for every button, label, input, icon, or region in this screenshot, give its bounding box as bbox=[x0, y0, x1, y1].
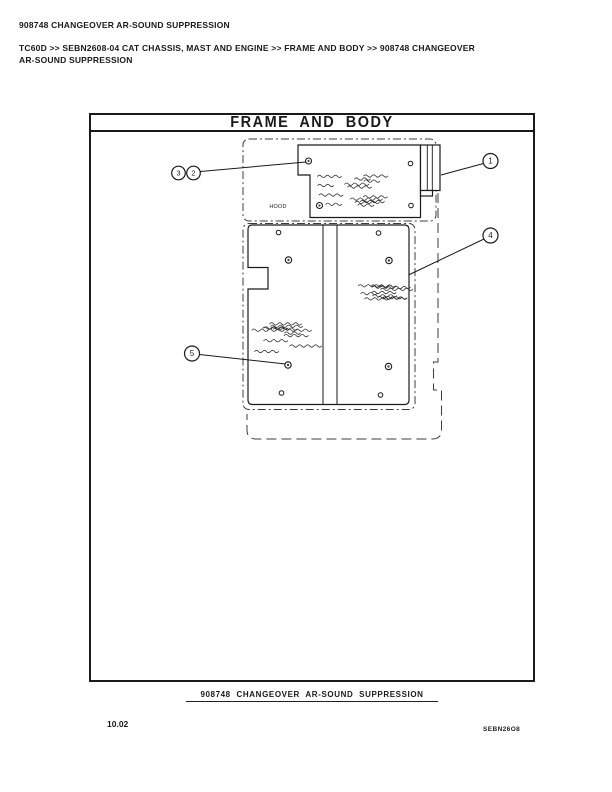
figure-caption: 908748 CHANGEOVER AR-SOUND SUPPRESSION bbox=[186, 690, 437, 702]
screw-hole bbox=[409, 203, 414, 208]
callout-number: 1 bbox=[488, 157, 493, 166]
leader-line bbox=[409, 239, 485, 275]
hood-label: HOOD bbox=[269, 204, 286, 210]
hood-flange bbox=[421, 145, 441, 191]
bolt bbox=[385, 363, 391, 369]
callout-number: 3 bbox=[176, 169, 180, 178]
frame-and-body-drawing: 3 2 1 4 5 HOOD bbox=[91, 134, 533, 680]
page-root: { "colors": { "ink": "#1a1a1a" }, "page"… bbox=[0, 0, 612, 792]
callout-balloon-2: 2 bbox=[187, 166, 201, 180]
breadcrumb: TC60D >> SEBN2608-04 CAT CHASSIS, MAST A… bbox=[19, 43, 481, 66]
callout-number: 5 bbox=[190, 349, 195, 358]
screw-hole bbox=[276, 230, 281, 235]
screw-hole bbox=[279, 391, 284, 396]
bolt bbox=[285, 362, 291, 368]
callout-balloon-4: 4 bbox=[483, 228, 498, 243]
callout-balloon-1: 1 bbox=[483, 154, 498, 169]
leader-line bbox=[201, 162, 307, 172]
bolt bbox=[386, 257, 392, 263]
figure-title-bar: FRAME AND BODY bbox=[91, 115, 533, 132]
bolt bbox=[306, 158, 312, 164]
leader-line bbox=[441, 164, 484, 176]
figure-border: FRAME AND BODY bbox=[89, 113, 535, 682]
callout-balloon-5: 5 bbox=[185, 346, 200, 361]
document-title: 908748 CHANGEOVER AR-SOUND SUPPRESSION bbox=[19, 20, 230, 30]
body-panel bbox=[248, 225, 409, 405]
hood-flange-step bbox=[421, 191, 433, 197]
bolt bbox=[317, 203, 323, 209]
screw-hole bbox=[408, 161, 413, 166]
page-number: 10.02 bbox=[107, 719, 128, 729]
screw-hole bbox=[378, 393, 383, 398]
screw-hole bbox=[376, 231, 381, 236]
bolt bbox=[285, 257, 291, 263]
figure-caption-row: 908748 CHANGEOVER AR-SOUND SUPPRESSION bbox=[89, 684, 535, 702]
callout-number: 2 bbox=[191, 169, 195, 178]
callout-balloon-3: 3 bbox=[172, 166, 186, 180]
callout-number: 4 bbox=[488, 231, 493, 240]
doc-code: SEBN26O8 bbox=[483, 726, 520, 733]
figure-title: FRAME AND BODY bbox=[230, 114, 393, 131]
